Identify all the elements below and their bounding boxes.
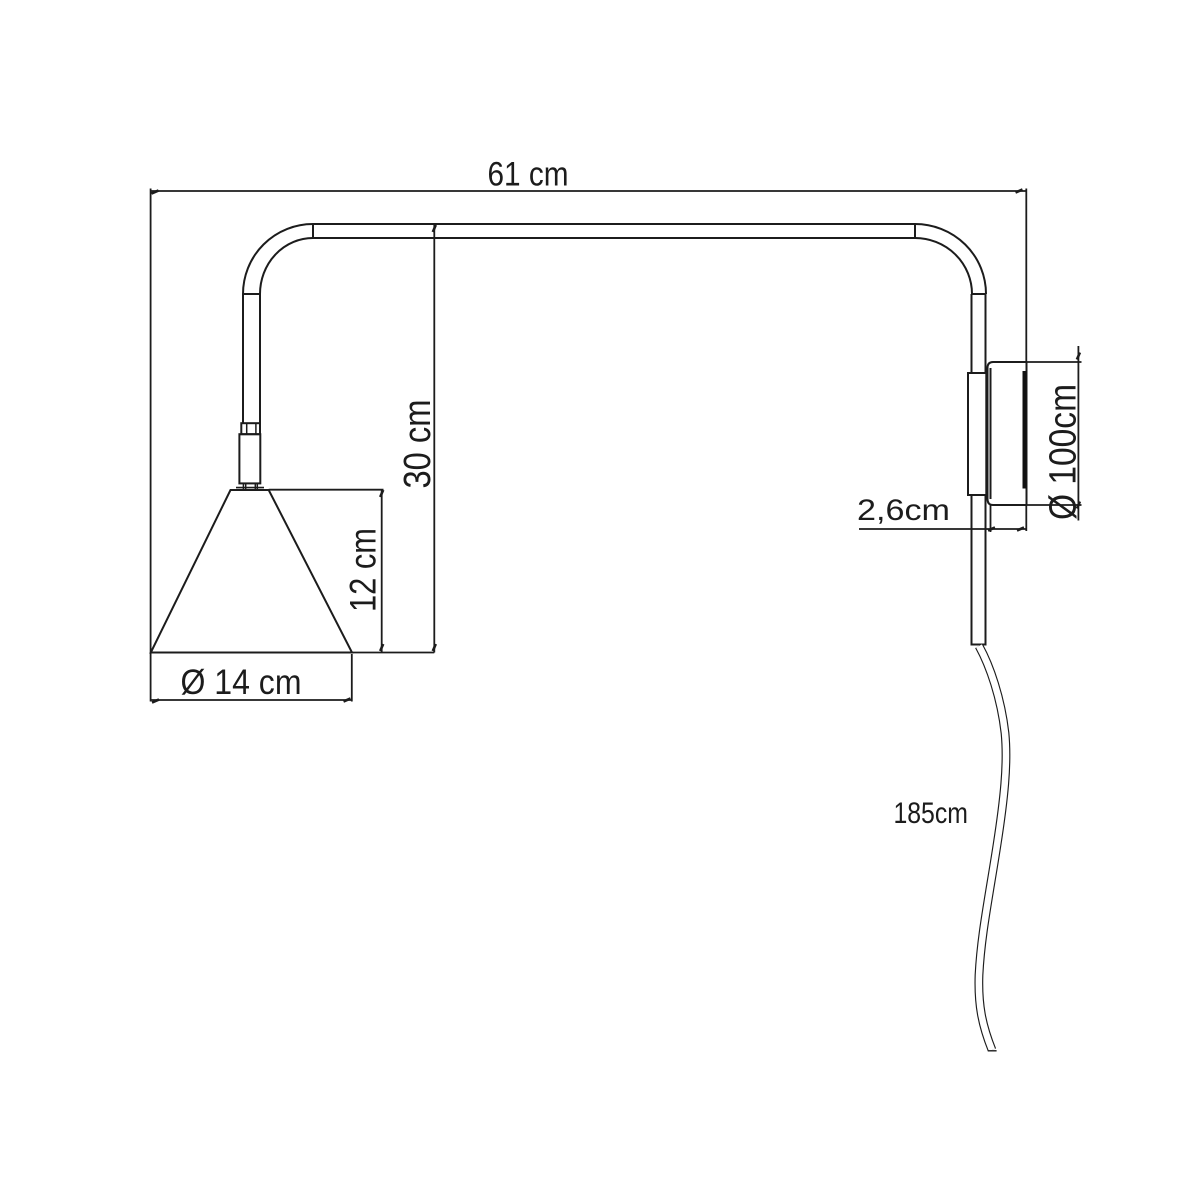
svg-text:12 cm: 12 cm (342, 528, 383, 612)
svg-text:30 cm: 30 cm (397, 400, 439, 489)
svg-text:Ø 100cm: Ø 100cm (1043, 384, 1085, 520)
svg-text:61 cm: 61 cm (488, 156, 569, 194)
svg-text:2,6cm: 2,6cm (857, 494, 950, 527)
svg-text:Ø 14 cm: Ø 14 cm (181, 663, 302, 702)
svg-text:185cm: 185cm (893, 797, 968, 830)
